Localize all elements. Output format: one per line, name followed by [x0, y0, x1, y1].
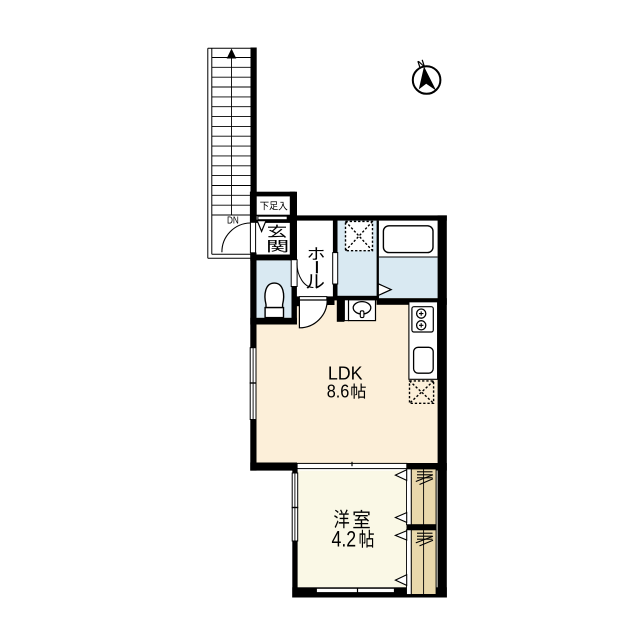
svg-text:8.6: 8.6 — [327, 381, 350, 402]
svg-text:4.2: 4.2 — [332, 526, 357, 551]
svg-text:DN: DN — [227, 216, 239, 227]
